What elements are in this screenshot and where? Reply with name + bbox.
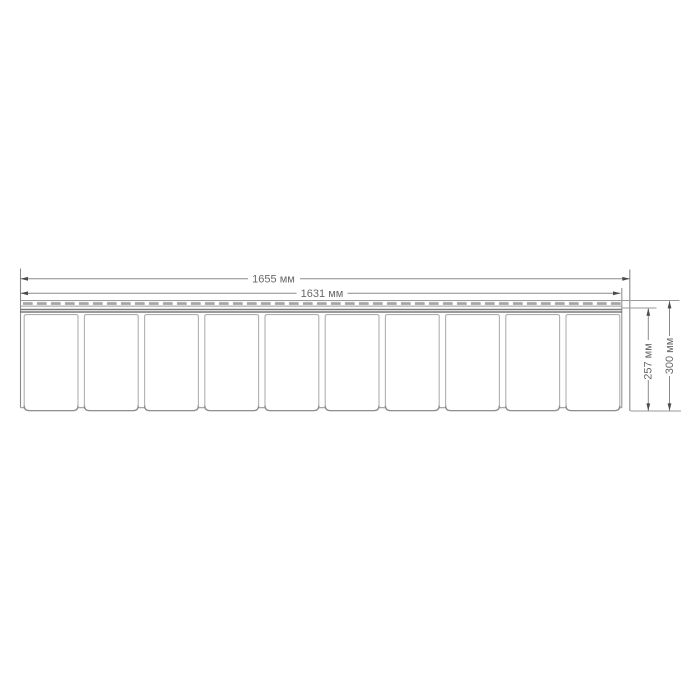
svg-text:1655 мм: 1655 мм <box>252 273 295 285</box>
svg-text:1631 мм: 1631 мм <box>301 288 344 300</box>
svg-text:300 мм: 300 мм <box>664 338 676 375</box>
svg-text:257 мм: 257 мм <box>643 343 655 380</box>
